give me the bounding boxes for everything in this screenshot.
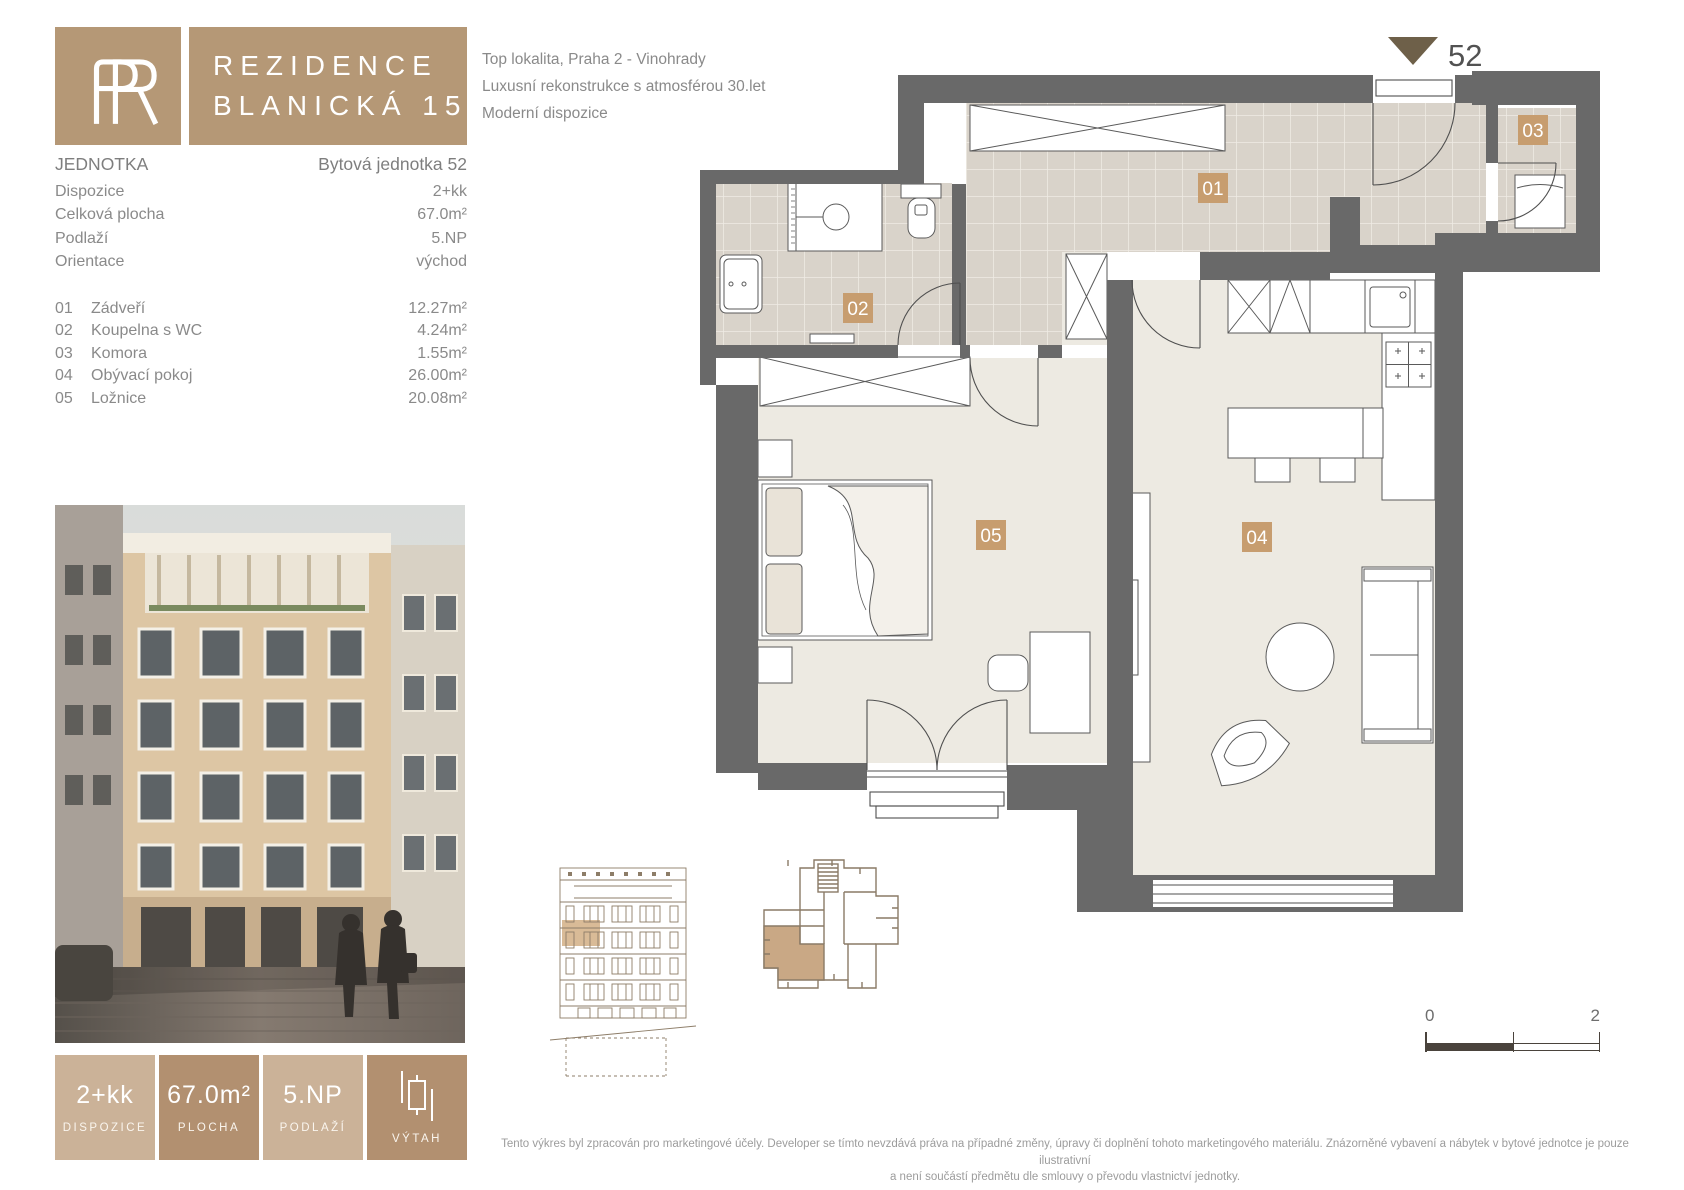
brand-logo — [55, 27, 181, 145]
unit-row-plocha: Celková plocha 67.0m² — [55, 203, 467, 227]
unit-row-value: 5.NP — [431, 227, 467, 251]
plan-badge-01: 01 — [1202, 179, 1223, 200]
bath-mat — [810, 334, 854, 343]
disclaimer-line1: Tento výkres byl zpracován pro marketing… — [480, 1136, 1650, 1169]
room-num: 01 — [55, 298, 91, 321]
washing-machine — [1515, 175, 1565, 228]
scale-bar: 0 2 — [1425, 1006, 1600, 1052]
desk — [1030, 632, 1090, 733]
shower — [788, 183, 882, 251]
room-area: 26.00m² — [408, 365, 467, 388]
badge-value: 5.NP — [283, 1081, 343, 1110]
plan-badge-05: 05 — [980, 526, 1001, 547]
desk-chair — [988, 655, 1028, 691]
bed — [758, 480, 932, 640]
room-row-01: 01 Zádveří 12.27m² — [55, 298, 467, 321]
badge-vytah: VÝTAH — [367, 1055, 467, 1160]
floor-plan: 01 02 03 04 05 52 — [670, 35, 1620, 920]
nightstand — [758, 647, 792, 683]
scale-start: 0 — [1425, 1006, 1434, 1026]
hall-closet — [970, 105, 1225, 151]
room-list: 01 Zádveří 12.27m² 02 Koupelna s WC 4.24… — [55, 298, 467, 411]
unit-row-value: východ — [416, 250, 467, 274]
badge-value: 2+kk — [76, 1081, 134, 1110]
sofa — [1362, 567, 1433, 743]
unit-section-label: JEDNOTKA — [55, 153, 148, 177]
building-photo — [55, 505, 465, 1043]
room-num: 03 — [55, 343, 91, 366]
scale-bar-graphic — [1425, 1032, 1600, 1052]
unit-row-podlazi: Podlaží 5.NP — [55, 227, 467, 251]
room-name: Koupelna s WC — [91, 320, 417, 343]
building-elevation-drawing — [548, 858, 698, 1083]
badge-dispozice: 2+kk DISPOZICE — [55, 1055, 155, 1160]
room-num: 04 — [55, 365, 91, 388]
room-area: 12.27m² — [408, 298, 467, 321]
badge-label: VÝTAH — [392, 1133, 442, 1145]
brochure-page: REZIDENCE BLANICKÁ 15 Top lokalita, Prah… — [0, 0, 1684, 1190]
badge-label: DISPOZICE — [63, 1122, 147, 1134]
room-num: 02 — [55, 320, 91, 343]
badge-plocha: 67.0m² PLOCHA — [159, 1055, 259, 1160]
room-num: 05 — [55, 388, 91, 411]
nightstand — [758, 440, 792, 477]
kitchen-counter — [1228, 280, 1435, 333]
brand-title: REZIDENCE BLANICKÁ 15 — [189, 27, 467, 145]
unit-info-panel: JEDNOTKA Bytová jednotka 52 Dispozice 2+… — [55, 153, 467, 410]
bedroom-wardrobe — [760, 357, 970, 406]
room-area: 1.55m² — [417, 343, 467, 366]
car-silhouette — [55, 945, 113, 1001]
unit-row-label: Orientace — [55, 250, 124, 274]
scale-bar-filled — [1425, 1043, 1513, 1051]
unit-header-row: JEDNOTKA Bytová jednotka 52 — [55, 153, 467, 177]
bathroom-sink — [720, 255, 762, 313]
summary-badges: 2+kk DISPOZICE 67.0m² PLOCHA 5.NP PODLAŽ… — [55, 1055, 467, 1160]
badge-label: PODLAŽÍ — [280, 1122, 347, 1134]
room-area: 4.24m² — [417, 320, 467, 343]
elevator-icon — [394, 1071, 440, 1121]
unit-row-value: 2+kk — [433, 180, 467, 204]
cooktop — [1382, 333, 1435, 500]
room-name: Zádveří — [91, 298, 408, 321]
entrance-arrow-icon — [1388, 37, 1438, 65]
room-name: Ložnice — [91, 388, 408, 411]
mini-site-plan — [748, 848, 918, 1000]
disclaimer: Tento výkres byl zpracován pro marketing… — [480, 1136, 1650, 1186]
pr-monogram-icon — [70, 43, 166, 129]
living-window — [1153, 880, 1393, 907]
plan-badge-04: 04 — [1246, 528, 1268, 549]
room-area: 20.08m² — [408, 388, 467, 411]
room-row-02: 02 Koupelna s WC 4.24m² — [55, 320, 467, 343]
room-row-04: 04 Obývací pokoj 26.00m² — [55, 365, 467, 388]
unit-name: Bytová jednotka 52 — [318, 153, 467, 177]
badge-value: 67.0m² — [167, 1081, 251, 1110]
plan-badge-03: 03 — [1522, 121, 1543, 142]
scale-end: 2 — [1591, 1006, 1600, 1026]
unit-row-label: Dispozice — [55, 180, 124, 204]
plan-badge-02: 02 — [847, 299, 868, 320]
unit-row-label: Celková plocha — [55, 203, 164, 227]
scale-bar-empty — [1513, 1043, 1601, 1051]
unit-row-value: 67.0m² — [417, 203, 467, 227]
brand-title-line1: REZIDENCE — [213, 46, 467, 86]
unit-row-label: Podlaží — [55, 227, 108, 251]
brand-title-line2: BLANICKÁ 15 — [213, 86, 467, 126]
unit-row-orientace: Orientace východ — [55, 250, 467, 274]
entrance-marker: 52 — [1388, 37, 1482, 73]
disclaimer-line2: a není součástí předmětu dle smlouvy o p… — [480, 1169, 1650, 1186]
badge-podlazi: 5.NP PODLAŽÍ — [263, 1055, 363, 1160]
room-row-03: 03 Komora 1.55m² — [55, 343, 467, 366]
round-rug — [1266, 623, 1334, 691]
hall-cabinet — [1066, 254, 1107, 339]
room-row-05: 05 Ložnice 20.08m² — [55, 388, 467, 411]
unit-row-dispozice: Dispozice 2+kk — [55, 180, 467, 204]
badge-label: PLOCHA — [178, 1122, 240, 1134]
scale-numbers: 0 2 — [1425, 1006, 1600, 1026]
room-name: Komora — [91, 343, 417, 366]
unit-number-marker: 52 — [1448, 38, 1482, 73]
room-name: Obývací pokoj — [91, 365, 408, 388]
